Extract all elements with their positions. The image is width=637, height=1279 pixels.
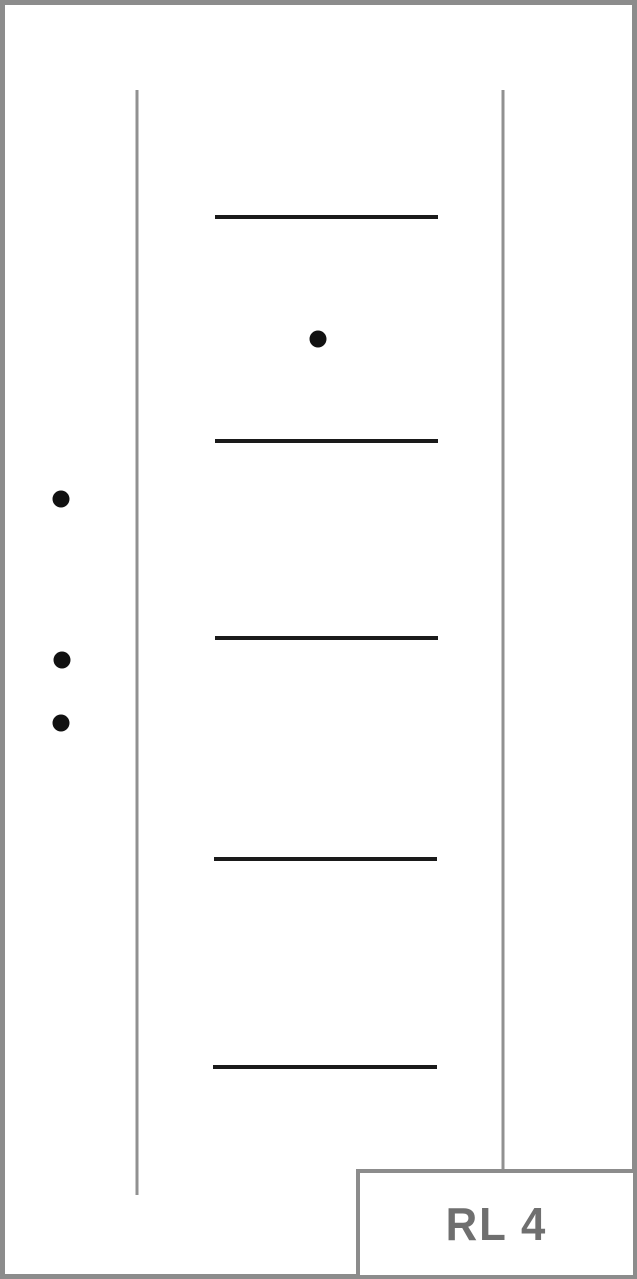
dot-marker [54,652,71,669]
door-model-diagram: RL 4 [0,0,637,1279]
dot-marker [310,331,327,348]
model-label: RL 4 [446,1197,548,1251]
dot-marker [53,491,70,508]
dot-marker [53,715,70,732]
model-label-box: RL 4 [356,1169,637,1279]
door-panel-drawing [0,0,637,1279]
